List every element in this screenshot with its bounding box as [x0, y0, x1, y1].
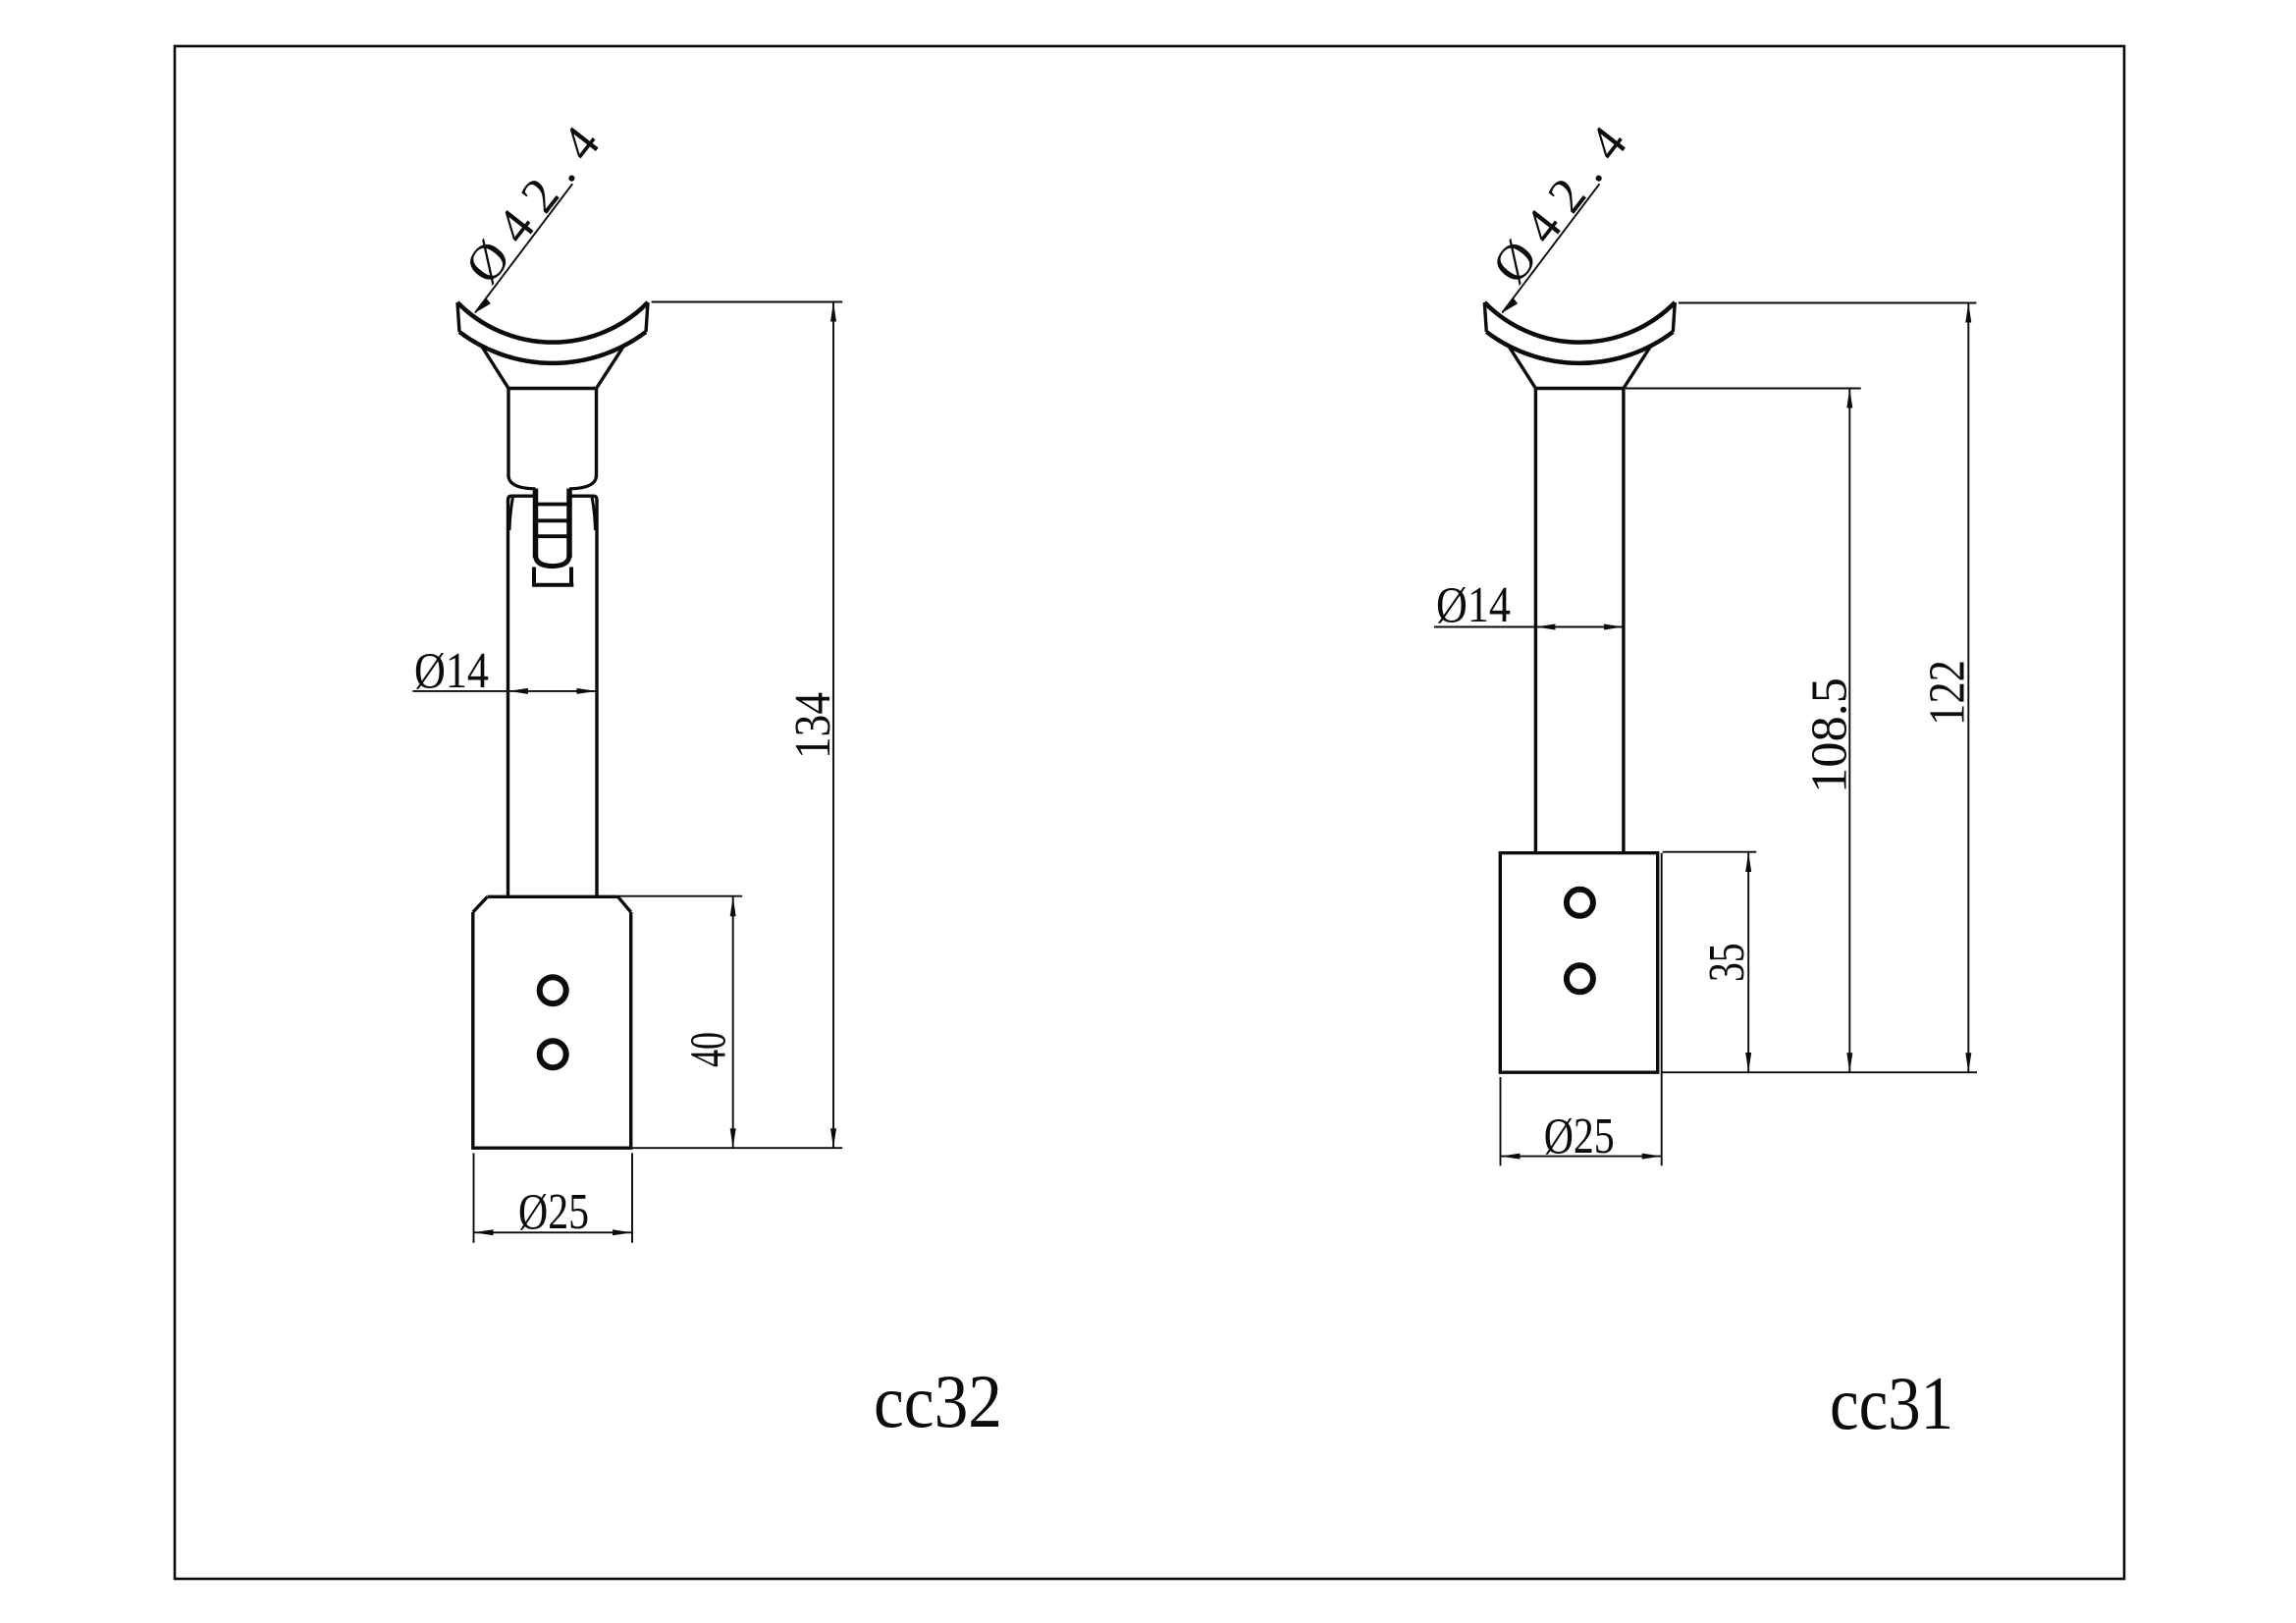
svg-text:cc31: cc31	[1830, 1361, 1953, 1445]
svg-text:Ø25: Ø25	[518, 1184, 589, 1240]
svg-text:Ø14: Ø14	[1436, 577, 1511, 633]
svg-text:cc32: cc32	[874, 1359, 1002, 1443]
svg-text:122: 122	[1920, 660, 1976, 726]
svg-text:134: 134	[785, 692, 841, 759]
svg-text:108.5: 108.5	[1802, 677, 1858, 793]
svg-text:40: 40	[681, 1032, 737, 1067]
svg-text:Ø25: Ø25	[1544, 1109, 1615, 1164]
svg-text:Ø14: Ø14	[414, 643, 489, 699]
svg-text:35: 35	[1699, 944, 1755, 983]
